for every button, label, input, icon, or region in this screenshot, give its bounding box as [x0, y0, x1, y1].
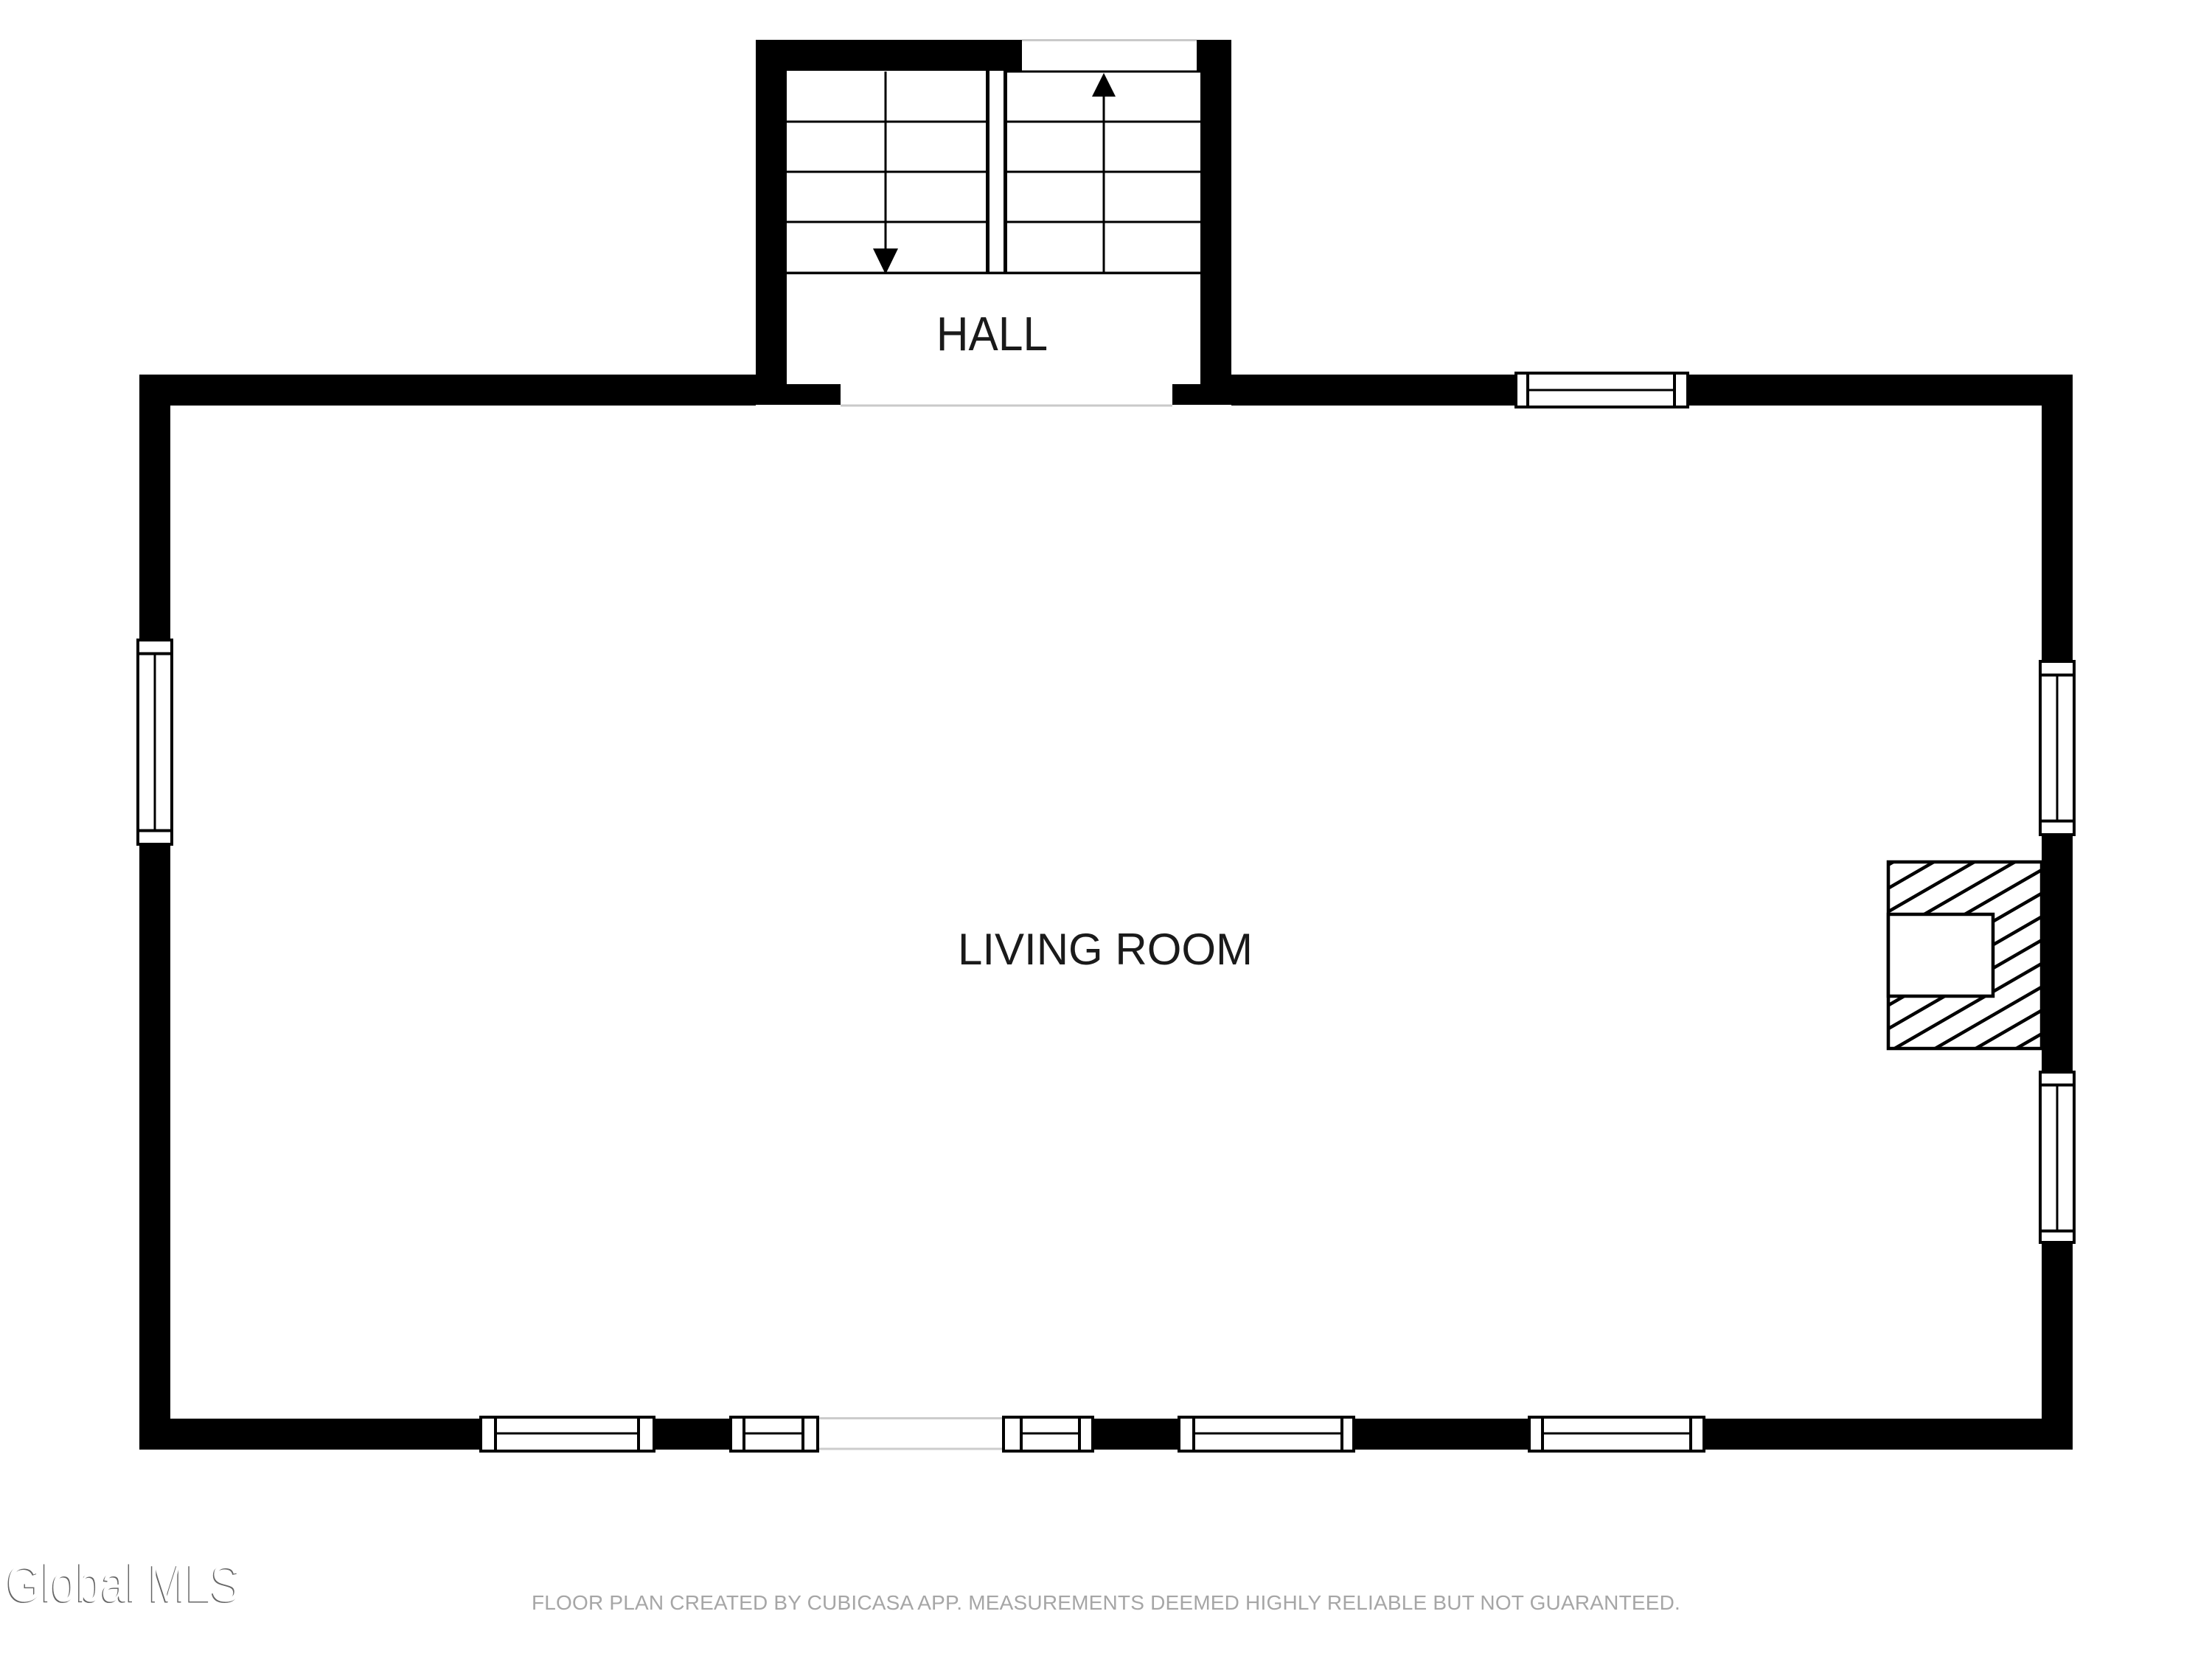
svg-text:Global MLS: Global MLS: [7, 1554, 240, 1613]
svg-text:HALL: HALL: [936, 307, 1048, 361]
svg-text:FLOOR PLAN CREATED BY CUBICASA: FLOOR PLAN CREATED BY CUBICASA APP. MEAS…: [532, 1591, 1680, 1614]
svg-text:LIVING ROOM: LIVING ROOM: [958, 925, 1253, 974]
